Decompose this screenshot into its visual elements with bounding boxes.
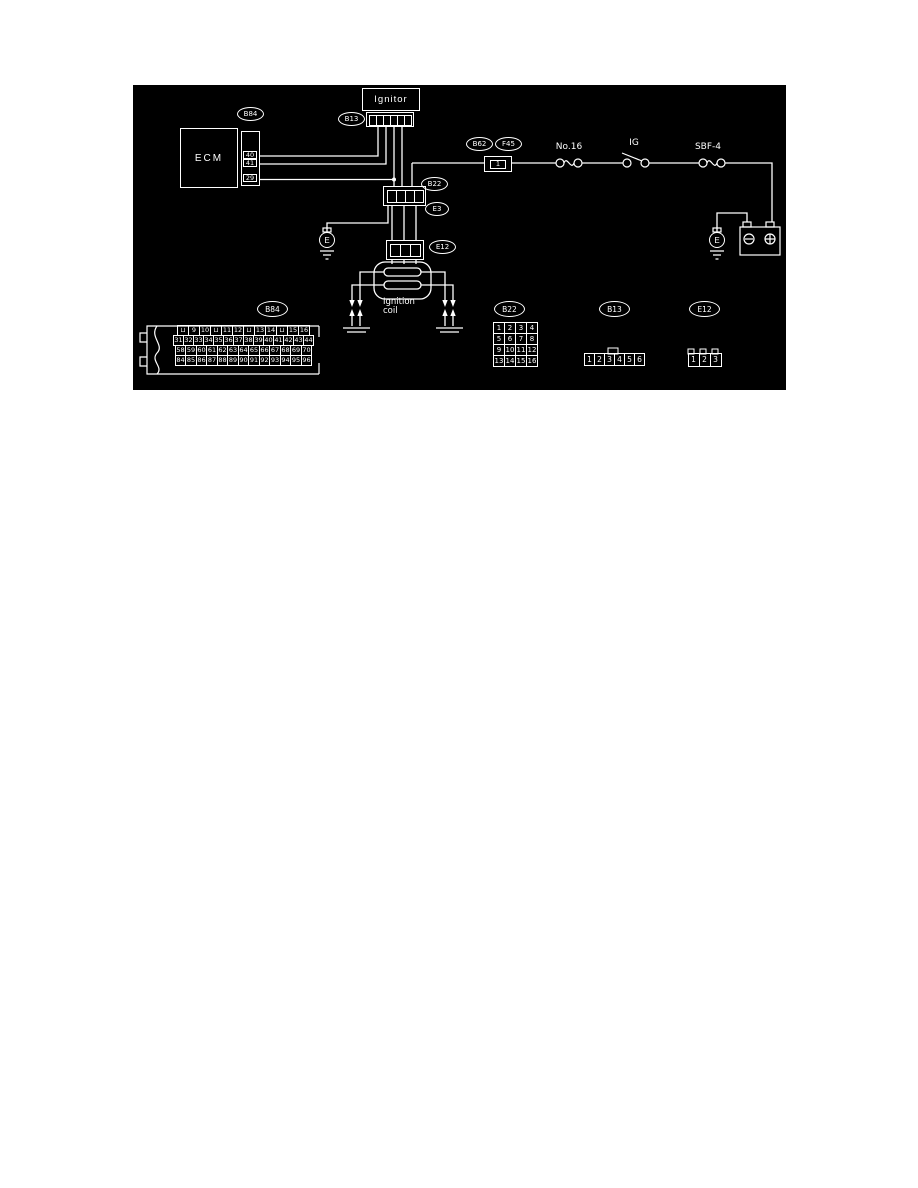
- fuse-no16-icon: [556, 159, 582, 167]
- pin-row: 58596061626364656667686970: [175, 345, 312, 355]
- ecm-label: ECM: [195, 153, 223, 164]
- inline-connector-b62-f45: 1: [484, 156, 512, 172]
- connector-pinout-b13: 123456: [580, 353, 648, 365]
- connector-ref-e12: E12: [429, 240, 456, 254]
- connector-ref-b62: B62: [466, 137, 493, 151]
- pin-cell: [414, 190, 424, 203]
- spark-gap-grounds: [343, 328, 463, 332]
- ecm-pin-40: 40: [243, 151, 257, 159]
- pin-row: [387, 190, 423, 202]
- pin-row: 1234: [493, 322, 537, 333]
- ignition-coil-label: Ignition coil: [383, 298, 415, 316]
- battery-minus-icon: [744, 234, 754, 244]
- pin-row: [369, 115, 411, 125]
- pin-row: 9101112: [493, 344, 537, 355]
- wires: [260, 127, 772, 326]
- pin-cell: 6: [634, 353, 645, 366]
- sbf4-label: SBF-4: [680, 142, 736, 152]
- connector-ref-e3: E3: [425, 202, 449, 216]
- inline-connector-b13: [366, 112, 414, 127]
- terminal-1: 1: [490, 160, 506, 169]
- pin-cell: [404, 115, 412, 126]
- ignition-switch-label: IG: [619, 138, 649, 148]
- pin-row: 3132333435363738394041424344: [173, 335, 313, 345]
- connector-ref-b22: B22: [421, 177, 448, 191]
- connector-pinout-e12: 123: [685, 353, 723, 366]
- connector-pinout-b84: ⊔910⊔1112⊔1314⊔1516313233343536373839404…: [161, 325, 325, 365]
- wire-junction-dot: [392, 178, 396, 182]
- ignition-coil-label-line2: coil: [383, 307, 415, 316]
- pin-row: 123456: [584, 353, 644, 365]
- ignition-switch-icon: [622, 153, 649, 167]
- pin-row: 5678: [493, 333, 537, 344]
- fusible-link-sbf4-icon: [699, 159, 725, 167]
- inline-connector-b22: [383, 186, 426, 206]
- ground-e-right: E: [709, 232, 725, 248]
- pin-row: [390, 244, 420, 256]
- ignitor-box: Ignitor: [362, 88, 420, 111]
- pinout-ref-b13: B13: [599, 301, 630, 317]
- ecm-connector-strip: 40 41 29: [241, 131, 260, 186]
- pinout-ref-b22: B22: [494, 301, 525, 317]
- ecm-box: ECM: [180, 128, 238, 188]
- pin-cell: [410, 244, 421, 257]
- connector-ref-f45: F45: [495, 137, 522, 151]
- pin-row: 84858687888990919293949596: [175, 355, 312, 365]
- ground-e-left: E: [319, 232, 335, 248]
- pin-cell: 3: [710, 353, 722, 367]
- ecm-pin-29: 29: [243, 174, 257, 182]
- battery-icon: [740, 222, 780, 255]
- ignition-coil-icon: [374, 262, 431, 299]
- ignition-wiring-diagram: ECM Ignitor 40 41 29 1 B84 B13 B22 E3 E1…: [133, 85, 786, 390]
- pin-cell: 16: [526, 355, 538, 367]
- connector-ref-b13: B13: [338, 112, 365, 126]
- pin-cell: 96: [301, 355, 313, 366]
- connector-pinout-b22: 12345678910111213141516: [490, 322, 540, 366]
- battery-plus-icon: [765, 234, 775, 244]
- ignitor-label: Ignitor: [374, 94, 407, 105]
- pin-row: 13141516: [493, 355, 537, 366]
- ecm-pin-41: 41: [243, 159, 257, 167]
- connector-ref-b84: B84: [237, 107, 264, 121]
- fuse-no16-label: No.16: [543, 142, 595, 152]
- inline-connector-e12: [386, 240, 424, 260]
- pin-row: ⊔910⊔1112⊔1314⊔1516: [177, 325, 309, 335]
- pin-row: 123: [688, 353, 721, 366]
- pinout-ref-e12: E12: [689, 301, 720, 317]
- pinout-ref-b84: B84: [257, 301, 288, 317]
- document-page: ECM Ignitor 40 41 29 1 B84 B13 B22 E3 E1…: [0, 0, 918, 1188]
